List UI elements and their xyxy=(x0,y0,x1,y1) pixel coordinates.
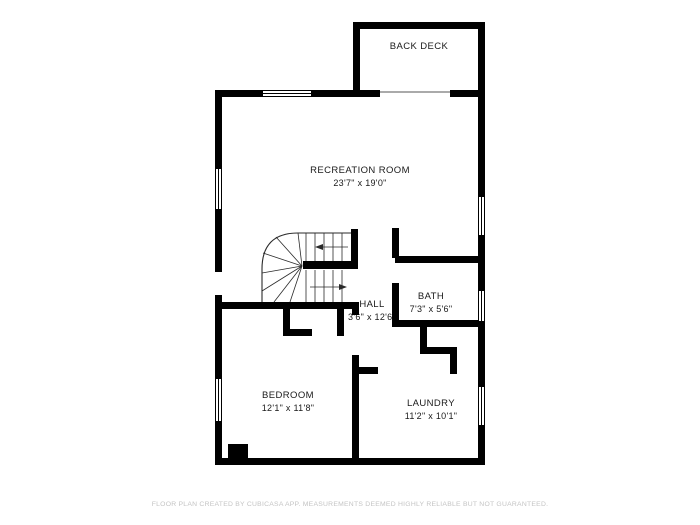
room-label-bedroom: BEDROOM 12'1" x 11'8" xyxy=(262,390,315,414)
wall-bedroom-right xyxy=(352,355,359,458)
wall-right xyxy=(478,322,485,386)
floor-plan-canvas: BACK DECK RECREATION ROOM 23'7" x 19'0" … xyxy=(0,0,700,525)
room-label-bath: BATH 7'3" x 5'6" xyxy=(410,291,453,315)
wall-top xyxy=(215,90,262,97)
wall-bath-bottom xyxy=(392,320,478,327)
wall-closet xyxy=(337,309,344,336)
window xyxy=(215,168,222,210)
room-dimensions: 12'1" x 11'8" xyxy=(262,402,315,414)
chimney-notch xyxy=(228,444,248,458)
door-tick xyxy=(352,309,359,315)
wall-left xyxy=(215,210,222,272)
room-name: RECREATION ROOM xyxy=(310,165,410,177)
wall-deck-top xyxy=(353,22,485,29)
window xyxy=(478,290,485,322)
wall-bath-top xyxy=(395,256,478,263)
deck-door-opening xyxy=(380,91,450,93)
wall-laundry-closet xyxy=(420,327,427,354)
room-label-recreation: RECREATION ROOM 23'7" x 19'0" xyxy=(310,165,410,189)
wall-bedroom-top xyxy=(215,302,359,309)
wall-closet xyxy=(283,329,312,336)
wall-laundry-closet xyxy=(450,347,457,374)
room-dimensions: 11'2" x 10'1" xyxy=(405,410,458,422)
room-name: BATH xyxy=(410,291,453,303)
room-label-back-deck: BACK DECK xyxy=(390,41,449,53)
wall-left xyxy=(215,90,222,168)
wall-right xyxy=(478,236,485,290)
room-label-laundry: LAUNDRY 11'2" x 10'1" xyxy=(405,398,458,422)
room-dimensions: 7'3" x 5'6" xyxy=(410,303,453,315)
wall-bottom xyxy=(215,458,485,465)
footer-disclaimer: FLOOR PLAN CREATED BY CUBICASA APP. MEAS… xyxy=(152,501,549,508)
wall-top xyxy=(312,90,380,97)
window xyxy=(478,196,485,236)
room-name: BACK DECK xyxy=(390,41,449,53)
wall-deck-right xyxy=(478,22,485,97)
wall-stair-landing xyxy=(303,261,358,269)
wall-right xyxy=(478,90,485,196)
window xyxy=(478,386,485,426)
wall-laundry-top xyxy=(359,367,378,374)
wall-bath-left xyxy=(392,228,399,258)
wall-deck-left xyxy=(353,22,360,97)
room-name: BEDROOM xyxy=(262,390,315,402)
room-dimensions: 23'7" x 19'0" xyxy=(310,177,410,189)
window xyxy=(215,378,222,422)
room-name: LAUNDRY xyxy=(405,398,458,410)
window xyxy=(262,90,312,97)
